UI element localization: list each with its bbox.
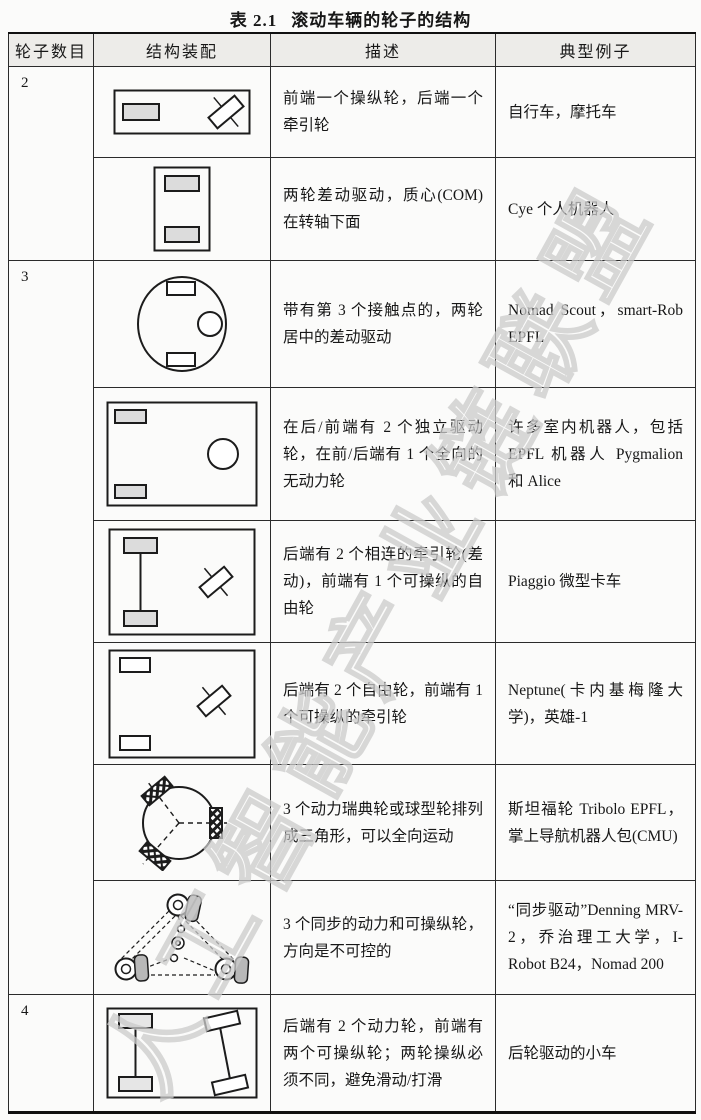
table-number: 表 2.1 — [230, 11, 278, 30]
description-cell: 后端有 2 个自由轮，前端有 1 个可操纵的牵引轮 — [271, 643, 496, 765]
examples-cell: Nomad Scout，smart-Rob EPFL — [496, 261, 696, 388]
diagram-cell — [94, 67, 271, 158]
table-title: 滚动车辆的轮子的结构 — [291, 11, 471, 30]
table-caption: 表 2.1滚动车辆的轮子的结构 — [0, 6, 701, 31]
three-swedish-omni-diagram — [132, 775, 232, 871]
header-description: 描述 — [271, 33, 496, 67]
diagram-cell — [94, 643, 271, 765]
description-cell: 3 个同步的动力和可操纵轮，方向是不可控的 — [271, 881, 496, 995]
examples-cell: 自行车，摩托车 — [496, 67, 696, 158]
diagram-cell — [94, 995, 271, 1113]
table-row: 4 后端有 2 个动力轮，前端有两个可操纵轮；两轮操纵必须不同，避免滑动/打滑 … — [9, 995, 696, 1113]
examples-cell: Piaggio 微型卡车 — [496, 521, 696, 643]
wheel-count-cell: 3 — [9, 261, 94, 995]
description-cell: 带有第 3 个接触点的，两轮居中的差动驱动 — [271, 261, 496, 388]
table-row: 后端有 2 个自由轮，前端有 1 个可操纵的牵引轮 Neptune(卡内基梅隆大… — [9, 643, 696, 765]
two-independent-drive-omni-diagram — [106, 401, 258, 507]
header-wheel-count: 轮子数目 — [9, 33, 94, 67]
description-cell: 前端一个操纵轮，后端一个牵引轮 — [271, 67, 496, 158]
diagram-cell — [94, 158, 271, 261]
diagram-cell — [94, 765, 271, 881]
centered-differential-third-contact-diagram — [136, 275, 228, 373]
scanned-book-page: 表 2.1滚动车辆的轮子的结构 轮子数目 结构装配 描述 典型例子 2 — [0, 0, 701, 1120]
description-cell: 两轮差动驱动，质心(COM)在转轴下面 — [271, 158, 496, 261]
diagram-cell — [94, 521, 271, 643]
four-wheel-ackermann-diagram — [106, 1007, 258, 1099]
description-cell: 3 个动力瑞典轮或球型轮排列成三角形，可以全向运动 — [271, 765, 496, 881]
header-examples: 典型例子 — [496, 33, 696, 67]
examples-cell: 斯坦福轮 Tribolo EPFL，掌上导航机器人包(CMU) — [496, 765, 696, 881]
header-row: 轮子数目 结构装配 描述 典型例子 — [9, 33, 696, 67]
diagram-cell — [94, 388, 271, 521]
synchro-drive-diagram — [102, 885, 262, 991]
diagram-cell — [94, 261, 271, 388]
wheel-count-cell: 2 — [9, 67, 94, 261]
examples-cell: 后轮驱动的小车 — [496, 995, 696, 1113]
table-row: 两轮差动驱动，质心(COM)在转轴下面 Cye 个人机器人 — [9, 158, 696, 261]
table-row: 在后/前端有 2 个独立驱动轮，在前/后端有 1 个全向的无动力轮 许多室内机器… — [9, 388, 696, 521]
description-cell: 后端有 2 个相连的牵引轮(差动)，前端有 1 个可操纵的自由轮 — [271, 521, 496, 643]
description-cell: 在后/前端有 2 个独立驱动轮，在前/后端有 1 个全向的无动力轮 — [271, 388, 496, 521]
table-row: 3 个同步的动力和可操纵轮，方向是不可控的 “同步驱动”Denning MRV-… — [9, 881, 696, 995]
header-arrangement: 结构装配 — [94, 33, 271, 67]
examples-cell: Neptune(卡内基梅隆大学)，英雄-1 — [496, 643, 696, 765]
steered-front-traction-rear-diagram — [113, 89, 251, 135]
table-row: 3 个动力瑞典轮或球型轮排列成三角形，可以全向运动 斯坦福轮 Tribolo E… — [9, 765, 696, 881]
diagram-cell — [94, 881, 271, 995]
two-wheel-differential-com-diagram — [153, 166, 211, 252]
table-row: 3 带有第 3 个接触点的，两轮居中的差动驱动 Nomad Scout，smar… — [9, 261, 696, 388]
description-cell: 后端有 2 个动力轮，前端有两个可操纵轮；两轮操纵必须不同，避免滑动/打滑 — [271, 995, 496, 1113]
wheel-count-cell: 4 — [9, 995, 94, 1113]
connected-traction-steered-free-diagram — [108, 528, 256, 636]
two-free-steered-traction-diagram — [108, 649, 256, 759]
examples-cell: 许多室内机器人，包括 EPFL 机器人 Pygmalion 和 Alice — [496, 388, 696, 521]
examples-cell: “同步驱动”Denning MRV-2，乔治理工大学，I-Robot B24，N… — [496, 881, 696, 995]
wheel-structure-table: 轮子数目 结构装配 描述 典型例子 2 — [8, 32, 696, 1114]
examples-cell: Cye 个人机器人 — [496, 158, 696, 261]
table-row: 后端有 2 个相连的牵引轮(差动)，前端有 1 个可操纵的自由轮 Piaggio… — [9, 521, 696, 643]
table-row: 2 前端一个操纵轮，后端一个牵引轮 自行车，摩托车 — [9, 67, 696, 158]
